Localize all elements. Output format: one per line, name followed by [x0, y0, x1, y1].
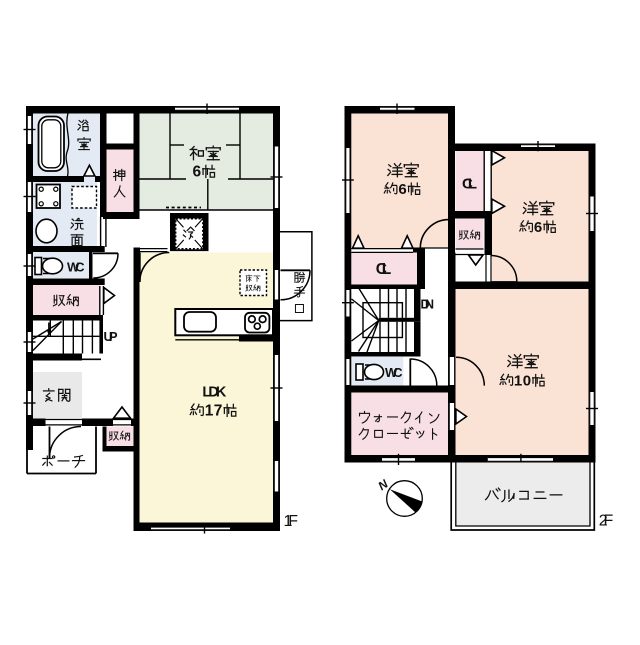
svg-text:6: 6 [534, 219, 542, 236]
svg-text:UP: UP [104, 329, 118, 344]
svg-text:CL: CL [462, 176, 477, 193]
svg-text:1: 1 [205, 402, 214, 419]
svg-text:WC: WC [385, 365, 403, 380]
svg-text:0: 0 [523, 372, 531, 389]
svg-text:WC: WC [67, 259, 85, 274]
svg-text:1: 1 [514, 372, 522, 389]
svg-text:6: 6 [192, 163, 201, 180]
svg-text:1F: 1F [284, 513, 299, 530]
svg-text:CL: CL [376, 261, 392, 278]
svg-text:6: 6 [398, 181, 406, 198]
svg-text:2F: 2F [599, 513, 614, 530]
svg-text:7: 7 [214, 402, 223, 419]
svg-text:DN: DN [421, 297, 435, 311]
svg-text:LDK: LDK [202, 385, 227, 401]
